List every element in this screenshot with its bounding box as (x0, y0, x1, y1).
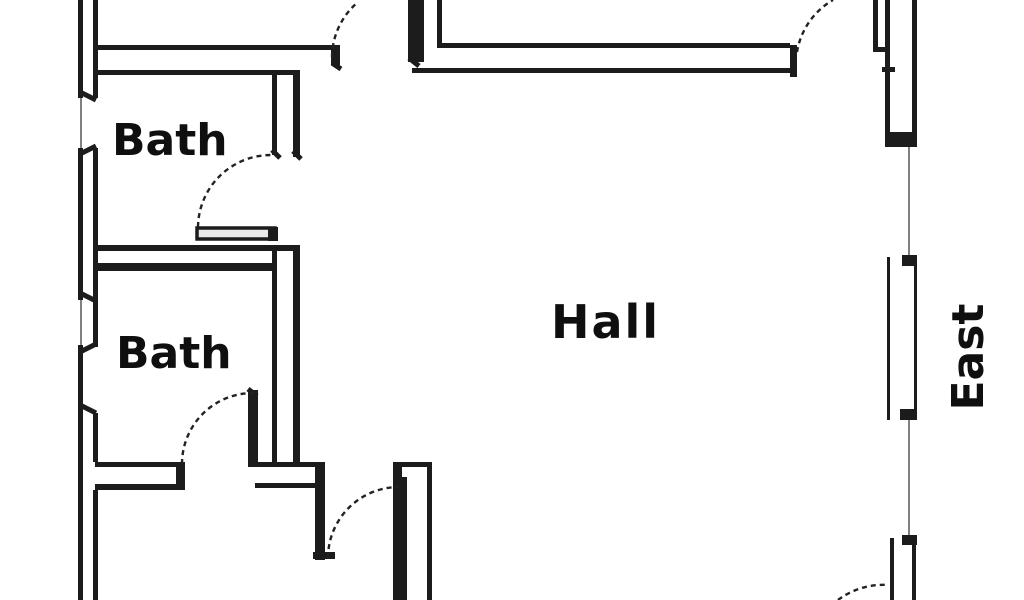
top-corridor-wall (95, 45, 341, 75)
room-label-bath-top: Bath (112, 119, 228, 163)
door-leaf-closed (197, 228, 275, 239)
left-wall-window-1 (80, 92, 96, 154)
door-arc-bottom-right (838, 585, 888, 600)
east-window-3 (890, 535, 917, 600)
floor-plan: Bath Bath Hall East (0, 0, 1024, 600)
bath-top-pocket-wall (95, 227, 300, 251)
door-leaf-open (248, 390, 258, 467)
compass-label-east: East (947, 297, 993, 417)
door-arc-top-right (797, 0, 833, 52)
bottom-doorway-walls (250, 462, 335, 560)
window-1-sill-cap (885, 132, 917, 147)
bath-top-right-wall (272, 75, 301, 159)
door-arc-bath-bottom (182, 393, 253, 464)
east-window-2 (887, 255, 917, 420)
floor-plan-drawing (0, 0, 1024, 600)
bottom-right-pillar (393, 462, 432, 600)
room-label-hall: Hall (551, 299, 660, 345)
room-label-bath-bottom: Bath (116, 332, 232, 376)
top-right-room-walls (408, 0, 797, 77)
door-swing-arcs (182, 0, 888, 600)
door-arc-bottom-hall (328, 487, 399, 558)
right-exterior-wall (873, 0, 917, 600)
